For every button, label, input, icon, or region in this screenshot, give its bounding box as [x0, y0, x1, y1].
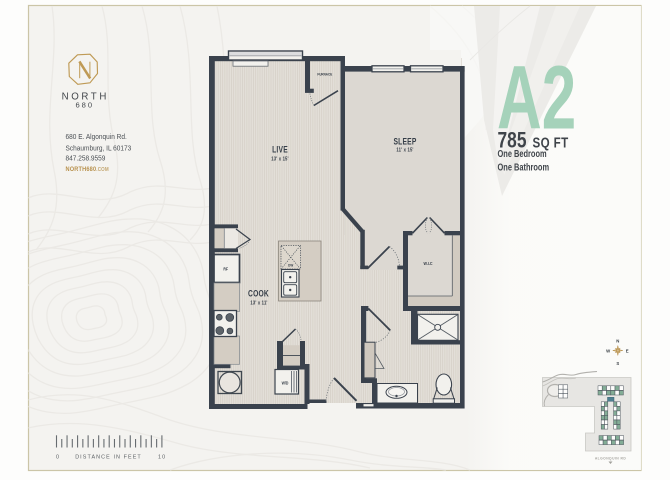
svg-text:E: E	[626, 348, 629, 353]
svg-text:680 E. Algonquin Rd.: 680 E. Algonquin Rd.	[66, 133, 127, 142]
svg-text:DISTANCE IN FEET: DISTANCE IN FEET	[75, 455, 142, 461]
svg-text:COOK: COOK	[248, 288, 269, 298]
svg-text:ALGONQUIN RD: ALGONQUIN RD	[595, 456, 626, 460]
svg-text:10: 10	[158, 455, 166, 461]
svg-text:NORTH680.COM: NORTH680.COM	[66, 167, 109, 173]
svg-text:13' x 15': 13' x 15'	[271, 156, 288, 163]
svg-text:N: N	[616, 338, 619, 343]
svg-text:W.I.C: W.I.C	[424, 261, 433, 267]
svg-text:One Bathroom: One Bathroom	[498, 161, 550, 172]
svg-text:W/D: W/D	[282, 380, 289, 386]
svg-text:680: 680	[75, 100, 94, 109]
svg-text:One Bedroom: One Bedroom	[498, 148, 547, 159]
svg-text:RF: RF	[223, 266, 228, 272]
svg-text:LIVE: LIVE	[272, 144, 288, 154]
svg-text:13' x 11': 13' x 11'	[250, 300, 267, 307]
svg-text:S: S	[616, 361, 619, 366]
svg-text:847.258.9559: 847.258.9559	[66, 154, 106, 163]
svg-text:Schaumburg, IL 60173: Schaumburg, IL 60173	[66, 144, 132, 153]
svg-text:DW: DW	[288, 263, 294, 267]
svg-text:FURNACE: FURNACE	[317, 72, 332, 76]
svg-text:SLEEP: SLEEP	[393, 136, 416, 146]
svg-text:11' x 15': 11' x 15'	[396, 147, 413, 154]
svg-text:0: 0	[56, 455, 60, 461]
